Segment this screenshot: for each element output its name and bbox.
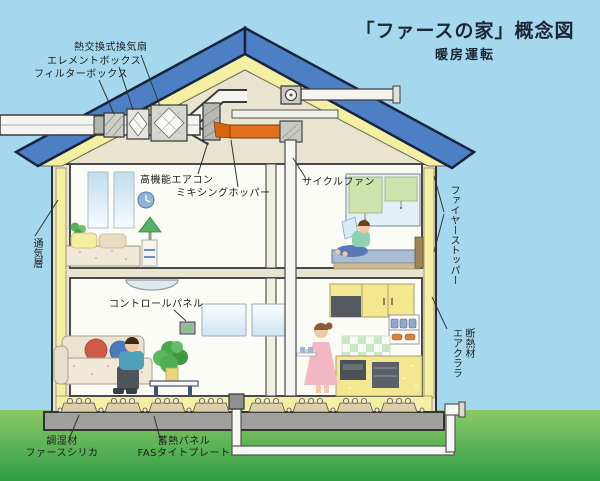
label-mixing-hopper: ミキシングホッパー	[176, 188, 271, 200]
wall-insulation-right	[424, 168, 434, 398]
label-ventilation-layer: 通気層	[30, 238, 42, 268]
range-hood	[331, 296, 361, 317]
bowl	[405, 334, 415, 340]
foundation-slab	[44, 412, 444, 430]
roof-exhaust-pipe	[301, 89, 395, 100]
label-aircon: 高機能エアコン	[140, 175, 214, 187]
pillow	[71, 233, 97, 248]
label-humidity-material: 調湿材 ファースシリカ	[12, 436, 112, 460]
label-control-panel: コントロールパネル	[109, 299, 204, 311]
first-floor-partition-wall	[266, 278, 276, 396]
backsplash-tiles	[342, 336, 390, 358]
first-floor	[54, 278, 422, 396]
label-insulation: 断熱材 エアクララ	[449, 328, 474, 378]
living-window-pane	[202, 304, 246, 336]
tray	[297, 353, 316, 356]
bedroom-window-pane	[88, 172, 108, 228]
cycle-fan-pipe	[285, 140, 296, 396]
exhaust-pipe-cap	[393, 86, 400, 103]
label-fire-stopper: ファイヤーストッパー	[447, 185, 459, 285]
hair-bun	[326, 323, 333, 330]
label-cycle-fan: サイクルファン	[302, 177, 375, 189]
bed2-base	[334, 263, 420, 269]
pipe-cap	[229, 394, 244, 409]
pillow	[99, 234, 126, 248]
vase	[166, 368, 178, 382]
label-heat-exchange-fan: 熱交換式換気扇	[74, 42, 148, 54]
open-shelf	[389, 315, 419, 344]
torso	[352, 231, 370, 247]
title-main: 「ファースの家」概念図	[336, 16, 594, 43]
jar	[391, 319, 398, 328]
label-filter-box: フィルターボックス	[34, 69, 128, 81]
label-element-box: エレメントボックス	[47, 56, 141, 68]
sofa-armrest	[54, 346, 68, 384]
dishwasher	[372, 362, 399, 388]
bed2-headboard	[415, 237, 423, 268]
warm-air-duct	[230, 125, 282, 138]
window-shade	[385, 177, 417, 201]
diagram-title: 「ファースの家」概念図 暖房運転	[336, 16, 594, 63]
bowl	[392, 334, 402, 340]
label-heat-storage-panel: 蓄熱パネル FASタイトプレート	[132, 436, 236, 460]
pipe-connector	[94, 116, 104, 134]
duct-elbow	[280, 121, 302, 142]
bedroom-window-pane	[114, 172, 134, 228]
ceiling-thin-duct	[232, 110, 338, 118]
torso	[119, 351, 144, 370]
control-panel-screen	[183, 325, 192, 331]
jar	[409, 319, 416, 328]
bed	[66, 246, 140, 266]
title-subtitle: 暖房運転	[336, 44, 594, 63]
diagram-canvas: 「ファースの家」概念図 暖房運転 熱交換式換気扇 エレメントボックス フィルター…	[0, 0, 600, 481]
second-floor-partition-wall	[266, 164, 276, 268]
jar	[400, 319, 407, 328]
